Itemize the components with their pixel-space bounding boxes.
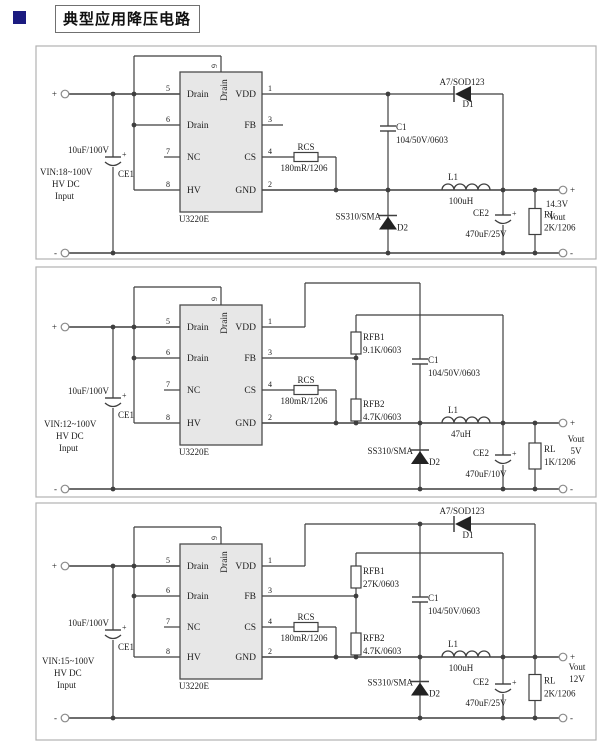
- ic-pin-name: VDD: [235, 323, 256, 333]
- ic-pin-number: 2: [268, 180, 272, 189]
- label-d2-part: SS310/SMA: [367, 678, 413, 688]
- label-ce2-value: 470uF/25V: [465, 229, 507, 239]
- label-rfb1-ref: RFB1: [363, 566, 385, 576]
- ic-pin-name: Drain: [220, 551, 230, 573]
- ic-pin-name: HV: [187, 419, 201, 429]
- junction-dot: [132, 594, 137, 599]
- label-vout-value: Vout: [549, 212, 566, 222]
- junction-dot: [501, 251, 506, 256]
- label-c1-ref: C1: [428, 355, 439, 365]
- label-rcs-value: 180mR/1206: [280, 396, 328, 406]
- terminal-vout-positive: [559, 419, 567, 427]
- label-ce2-ref: CE2: [473, 208, 489, 218]
- junction-dot: [111, 487, 116, 492]
- label-d2-ref: D2: [429, 689, 440, 699]
- label-d1-ref: D1: [463, 99, 474, 109]
- capacitor-ce1: [105, 162, 121, 166]
- label-l1-ref: L1: [448, 405, 458, 415]
- circuit-buck-5v: +-VIN:12~100VHV DCInput+10uF/100VCE15Dra…: [36, 267, 596, 497]
- ic-pin-number: 3: [268, 115, 272, 124]
- junction-dot: [501, 487, 506, 492]
- ic-pin-number: 6: [166, 586, 170, 595]
- junction-dot: [418, 716, 423, 721]
- label-vin-plus: +: [52, 89, 57, 99]
- junction-dot: [111, 325, 116, 330]
- label-d2-part: SS310/SMA: [367, 446, 413, 456]
- datasheet-page: { "page": { "title": "典型应用降压电路" }, "labe…: [0, 0, 607, 748]
- capacitor-ce2: [495, 220, 511, 224]
- junction-dot: [111, 716, 116, 721]
- terminal-vout-negative: [559, 485, 567, 493]
- ic-pin-number: 5: [166, 317, 170, 326]
- label-rl-ref: RL: [544, 444, 556, 454]
- terminal-vin-positive: [61, 323, 69, 331]
- ic-pin-number: 1: [268, 84, 272, 93]
- capacitor-ce1: [105, 403, 121, 407]
- capacitor-ce2: [495, 689, 511, 693]
- label-ce2-value: 470uF/10V: [465, 469, 507, 479]
- ic-pin-number: 1: [268, 556, 272, 565]
- ic-pin-name: CS: [244, 386, 256, 396]
- label-vin-spec: VIN:12~100V: [44, 419, 97, 429]
- label-ce1-ref: CE1: [118, 410, 134, 420]
- ic-pin-name: Drain: [220, 312, 230, 334]
- ic-pin-number: 8: [166, 413, 170, 422]
- label-ce1-value: 10uF/100V: [68, 145, 110, 155]
- junction-dot: [501, 716, 506, 721]
- resistor-rl: [529, 675, 541, 701]
- circuit-frame: [36, 503, 596, 740]
- ic-pin-number: 4: [268, 617, 272, 626]
- label-vin-spec: HV DC: [56, 431, 84, 441]
- junction-dot: [533, 188, 538, 193]
- label-ce2-ref: CE2: [473, 677, 489, 687]
- label-vout-value: 5V: [571, 446, 583, 456]
- ic-pin-name: Drain: [187, 592, 209, 602]
- junction-dot: [501, 655, 506, 660]
- label-vout-minus: -: [570, 248, 573, 258]
- ic-pin-number: 5: [166, 84, 170, 93]
- ic-pin-number: 3: [268, 348, 272, 357]
- junction-dot: [132, 92, 137, 97]
- label-d1-part: A7/SOD123: [439, 506, 485, 516]
- label-rcs-ref: RCS: [297, 142, 314, 152]
- terminal-vin-negative: [61, 714, 69, 722]
- label-vout-value: Vout: [569, 662, 586, 672]
- ic-pin-number: 4: [268, 380, 272, 389]
- diode-d2-body: [379, 217, 397, 230]
- junction-dot: [354, 421, 359, 426]
- circuit-buck-14v3: +-VIN:18~100VHV DCInput+10uF/100VCE15Dra…: [36, 46, 596, 259]
- label-vout-value: 14.3V: [546, 199, 569, 209]
- label-vin-spec: VIN:15~100V: [42, 656, 95, 666]
- label-l1-value: 100uH: [449, 196, 474, 206]
- junction-dot: [354, 655, 359, 660]
- label-vout-plus: +: [570, 185, 575, 195]
- terminal-vout-positive: [559, 186, 567, 194]
- ic-pin-name: HV: [187, 186, 201, 196]
- ic-pin-name: Drain: [187, 354, 209, 364]
- ic-pin-name: NC: [187, 153, 200, 163]
- ic-pin-name: CS: [244, 623, 256, 633]
- label-vin-spec: HV DC: [54, 668, 82, 678]
- ic-part-number: U3220E: [179, 214, 209, 224]
- label-l1-ref: L1: [448, 639, 458, 649]
- label-d1-ref: D1: [463, 530, 474, 540]
- ic-pin-number: 9: [210, 536, 219, 540]
- label-c1-value: 104/50V/0603: [428, 606, 481, 616]
- polarity-plus: +: [122, 150, 127, 159]
- junction-dot: [132, 123, 137, 128]
- label-vin-spec: Input: [57, 680, 76, 690]
- schematic-canvas: +-VIN:18~100VHV DCInput+10uF/100VCE15Dra…: [0, 0, 607, 748]
- label-ce1-value: 10uF/100V: [68, 386, 110, 396]
- label-c1-value: 104/50V/0603: [428, 368, 481, 378]
- resistor-rl: [529, 209, 541, 235]
- terminal-vin-negative: [61, 485, 69, 493]
- label-ce2-value: 470uF/25V: [465, 698, 507, 708]
- resistor-rfb1: [351, 332, 361, 354]
- ic-pin-name: Drain: [187, 323, 209, 333]
- junction-dot: [533, 487, 538, 492]
- terminal-vin-positive: [61, 90, 69, 98]
- label-vin-minus: -: [54, 484, 57, 494]
- label-vin-spec: HV DC: [52, 179, 80, 189]
- label-rl-value: 2K/1206: [544, 223, 576, 233]
- label-rcs-ref: RCS: [297, 612, 314, 622]
- resistor-rcs: [294, 153, 318, 162]
- ic-pin-name: GND: [235, 653, 256, 663]
- label-rfb1-value: 9.1K/0603: [363, 345, 402, 355]
- label-rfb1-value: 27K/0603: [363, 579, 400, 589]
- label-ce1-ref: CE1: [118, 642, 134, 652]
- ic-pin-name: NC: [187, 386, 200, 396]
- ic-pin-number: 6: [166, 348, 170, 357]
- label-vin-spec: VIN:18~100V: [40, 167, 93, 177]
- junction-dot: [418, 487, 423, 492]
- polarity-plus: +: [512, 678, 517, 687]
- label-l1-ref: L1: [448, 172, 458, 182]
- inductor-l1: [442, 651, 490, 657]
- label-rcs-value: 180mR/1206: [280, 163, 328, 173]
- junction-dot: [501, 421, 506, 426]
- terminal-vin-negative: [61, 249, 69, 257]
- ic-pin-number: 8: [166, 180, 170, 189]
- label-vout-minus: -: [570, 713, 573, 723]
- ic-pin-name: GND: [235, 186, 256, 196]
- ic-pin-name: Drain: [220, 79, 230, 101]
- ic-pin-number: 2: [268, 647, 272, 656]
- inductor-l1: [442, 184, 490, 190]
- resistor-rl: [529, 443, 541, 469]
- label-ce1-ref: CE1: [118, 169, 134, 179]
- ic-pin-number: 9: [210, 297, 219, 301]
- capacitor-ce1: [105, 635, 121, 639]
- ic-pin-number: 7: [166, 380, 170, 389]
- label-vin-spec: Input: [59, 443, 78, 453]
- label-rfb2-ref: RFB2: [363, 633, 385, 643]
- ic-pin-name: VDD: [235, 562, 256, 572]
- terminal-vin-positive: [61, 562, 69, 570]
- ic-pin-name: VDD: [235, 90, 256, 100]
- ic-pin-number: 4: [268, 147, 272, 156]
- label-vin-plus: +: [52, 561, 57, 571]
- ic-part-number: U3220E: [179, 447, 209, 457]
- label-rcs-value: 180mR/1206: [280, 633, 328, 643]
- label-l1-value: 47uH: [451, 429, 472, 439]
- ic-pin-number: 7: [166, 147, 170, 156]
- capacitor-ce2: [495, 460, 511, 464]
- label-vout-value: Vout: [568, 434, 585, 444]
- ic-pin-name: GND: [235, 419, 256, 429]
- junction-dot: [132, 325, 137, 330]
- junction-dot: [533, 251, 538, 256]
- junction-dot: [386, 251, 391, 256]
- label-rfb2-value: 4.7K/0603: [363, 646, 402, 656]
- junction-dot: [111, 251, 116, 256]
- ic-pin-number: 8: [166, 647, 170, 656]
- ic-pin-number: 1: [268, 317, 272, 326]
- label-l1-value: 100uH: [449, 663, 474, 673]
- terminal-vout-positive: [559, 653, 567, 661]
- resistor-rfb2: [351, 633, 361, 655]
- label-vin-minus: -: [54, 713, 57, 723]
- ic-pin-name: Drain: [187, 562, 209, 572]
- resistor-rfb1: [351, 566, 361, 588]
- label-rfb2-ref: RFB2: [363, 399, 385, 409]
- polarity-plus: +: [512, 209, 517, 218]
- circuit-buck-12v: +-VIN:15~100VHV DCInput+10uF/100VCE15Dra…: [36, 503, 596, 740]
- ic-pin-number: 7: [166, 617, 170, 626]
- junction-dot: [132, 564, 137, 569]
- circuit-frame: [36, 267, 596, 497]
- label-rfb1-ref: RFB1: [363, 332, 385, 342]
- diode-d2-body: [411, 683, 429, 696]
- ic-pin-name: CS: [244, 153, 256, 163]
- ic-pin-name: FB: [244, 354, 256, 364]
- label-rcs-ref: RCS: [297, 375, 314, 385]
- label-vout-value: 12V: [569, 674, 585, 684]
- label-c1-value: 104/50V/0603: [396, 135, 449, 145]
- ic-pin-name: Drain: [187, 90, 209, 100]
- polarity-plus: +: [122, 391, 127, 400]
- junction-dot: [111, 564, 116, 569]
- polarity-plus: +: [512, 449, 517, 458]
- terminal-vout-negative: [559, 714, 567, 722]
- label-ce1-value: 10uF/100V: [68, 618, 110, 628]
- label-vin-minus: -: [54, 248, 57, 258]
- resistor-rcs: [294, 623, 318, 632]
- junction-dot: [501, 188, 506, 193]
- ic-pin-number: 3: [268, 586, 272, 595]
- label-vout-plus: +: [570, 652, 575, 662]
- label-d2-part: SS310/SMA: [335, 212, 381, 222]
- label-rl-value: 1K/1206: [544, 457, 576, 467]
- label-vout-plus: +: [570, 418, 575, 428]
- ic-pin-name: FB: [244, 121, 256, 131]
- inductor-l1: [442, 417, 490, 423]
- ic-pin-number: 6: [166, 115, 170, 124]
- ic-pin-number: 5: [166, 556, 170, 565]
- label-rfb2-value: 4.7K/0603: [363, 412, 402, 422]
- label-rl-value: 2K/1206: [544, 689, 576, 699]
- resistor-rcs: [294, 386, 318, 395]
- ic-pin-number: 2: [268, 413, 272, 422]
- label-d1-part: A7/SOD123: [439, 77, 485, 87]
- label-vout-minus: -: [570, 484, 573, 494]
- diode-d2-body: [411, 451, 429, 464]
- ic-pin-name: HV: [187, 653, 201, 663]
- label-c1-ref: C1: [428, 593, 439, 603]
- ic-pin-name: NC: [187, 623, 200, 633]
- junction-dot: [132, 356, 137, 361]
- label-ce2-ref: CE2: [473, 448, 489, 458]
- junction-dot: [533, 655, 538, 660]
- polarity-plus: +: [122, 623, 127, 632]
- junction-dot: [111, 92, 116, 97]
- ic-part-number: U3220E: [179, 681, 209, 691]
- label-c1-ref: C1: [396, 122, 407, 132]
- label-d2-ref: D2: [397, 223, 408, 233]
- label-d2-ref: D2: [429, 457, 440, 467]
- ic-pin-number: 9: [210, 64, 219, 68]
- resistor-rfb2: [351, 399, 361, 421]
- junction-dot: [533, 421, 538, 426]
- label-rl-ref: RL: [544, 676, 556, 686]
- ic-pin-name: Drain: [187, 121, 209, 131]
- terminal-vout-negative: [559, 249, 567, 257]
- label-vin-spec: Input: [55, 191, 74, 201]
- label-vin-plus: +: [52, 322, 57, 332]
- junction-dot: [533, 716, 538, 721]
- ic-pin-name: FB: [244, 592, 256, 602]
